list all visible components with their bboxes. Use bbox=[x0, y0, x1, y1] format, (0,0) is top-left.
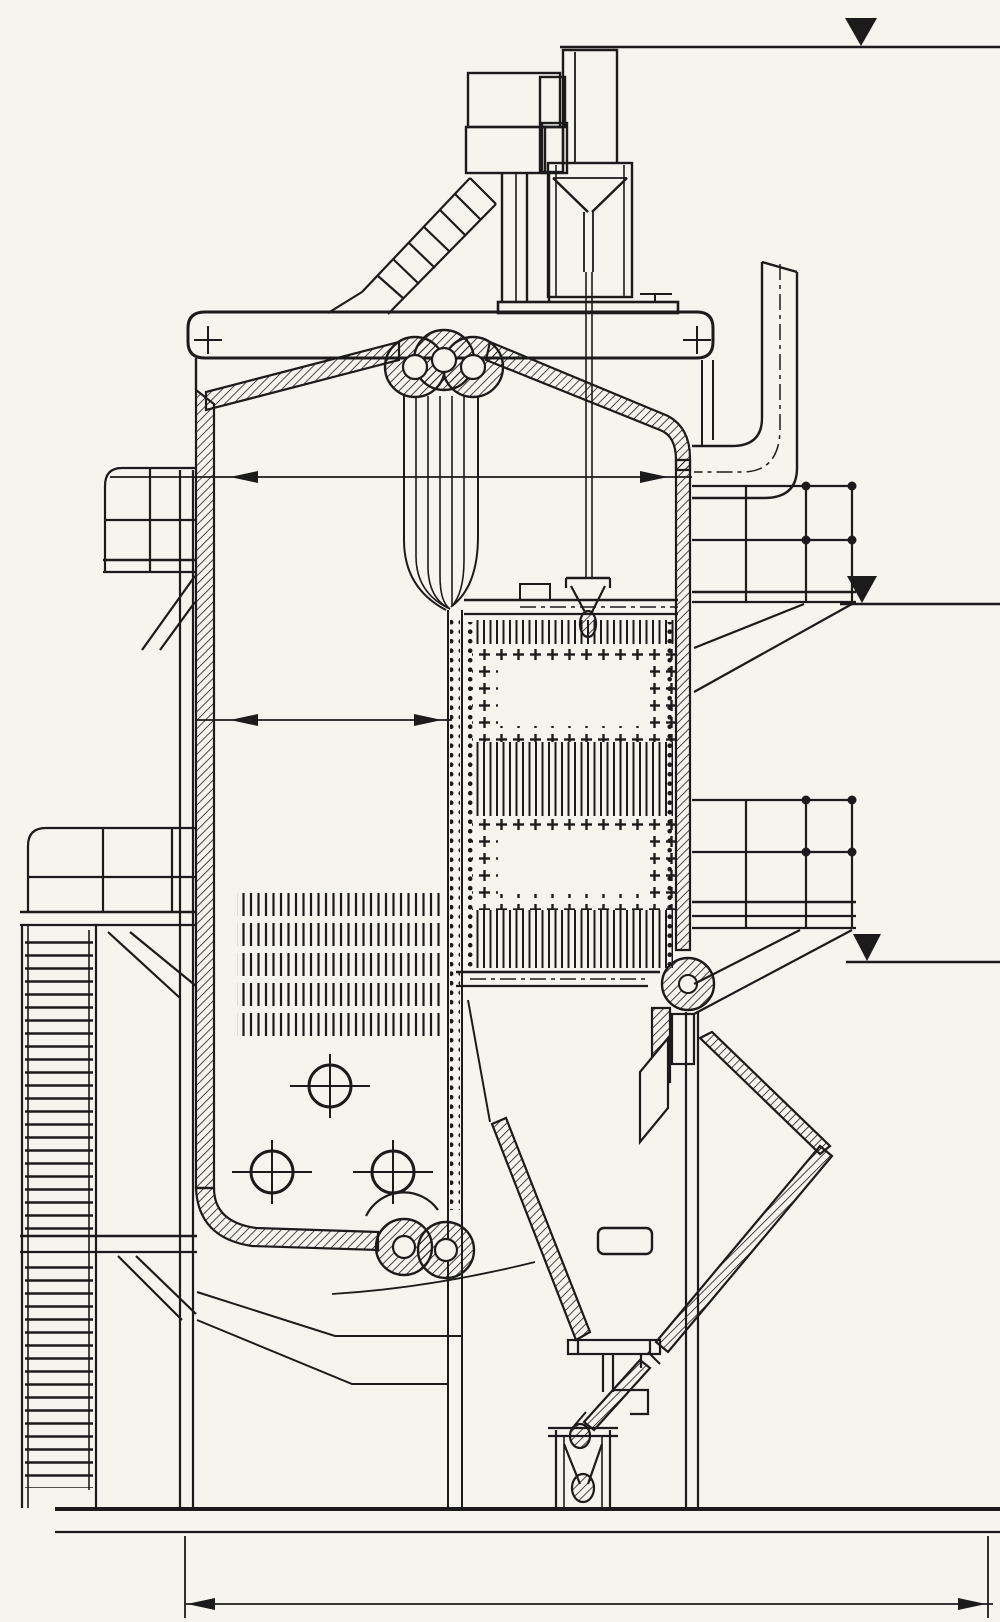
right-lower-platform bbox=[692, 796, 857, 1015]
dimension-value-top-width: 4480 bbox=[486, 428, 590, 471]
right-platforms bbox=[692, 482, 857, 1015]
elevation-value-top: 14677 bbox=[881, 8, 1000, 51]
gas-outlet-elbow bbox=[692, 262, 797, 498]
datum-cross-right bbox=[683, 326, 711, 354]
top-stack-structure bbox=[328, 50, 678, 578]
top-stair bbox=[328, 178, 496, 314]
ash-hopper bbox=[468, 1000, 832, 1354]
elevation-marker-middle: 8850 bbox=[840, 567, 1000, 610]
left-platforms-ladder bbox=[20, 468, 197, 1508]
elevation-marker-top: 14677 bbox=[560, 8, 1000, 51]
foundation-base bbox=[55, 1509, 1000, 1532]
upper-drum-cluster bbox=[385, 330, 503, 397]
convective-pass bbox=[456, 578, 714, 1010]
ash-discharge bbox=[548, 1352, 660, 1508]
elevation-triangle-icon bbox=[853, 934, 881, 961]
dimension-value-base-width: 2820 bbox=[409, 1554, 512, 1597]
left-upper-platform bbox=[103, 468, 197, 650]
deflector-plate bbox=[640, 1038, 668, 1142]
elevation-marker-lower: 5370 bbox=[846, 925, 1000, 968]
dimension-value-furnace-width: 2240 bbox=[279, 670, 382, 713]
dimension-base-width: 2820 bbox=[185, 1536, 993, 1618]
furnace-tube-band bbox=[237, 886, 443, 1038]
right-upper-platform bbox=[692, 482, 857, 693]
datum-cross-left bbox=[194, 326, 222, 354]
hopper-flange bbox=[568, 1340, 660, 1354]
burner-port bbox=[232, 1140, 312, 1204]
drawing-sheet: 14677 8850 5370 bbox=[0, 0, 1000, 1622]
side-ladder bbox=[22, 925, 96, 1508]
elevation-triangle-icon bbox=[845, 18, 877, 46]
discharge-chute bbox=[584, 1360, 650, 1430]
boiler-sectional-drawing: 14677 8850 5370 bbox=[0, 0, 1000, 1622]
dimension-furnace-width: 2240 bbox=[196, 670, 452, 726]
hopper-access-slot bbox=[598, 1228, 652, 1254]
burner-port bbox=[290, 1054, 370, 1118]
